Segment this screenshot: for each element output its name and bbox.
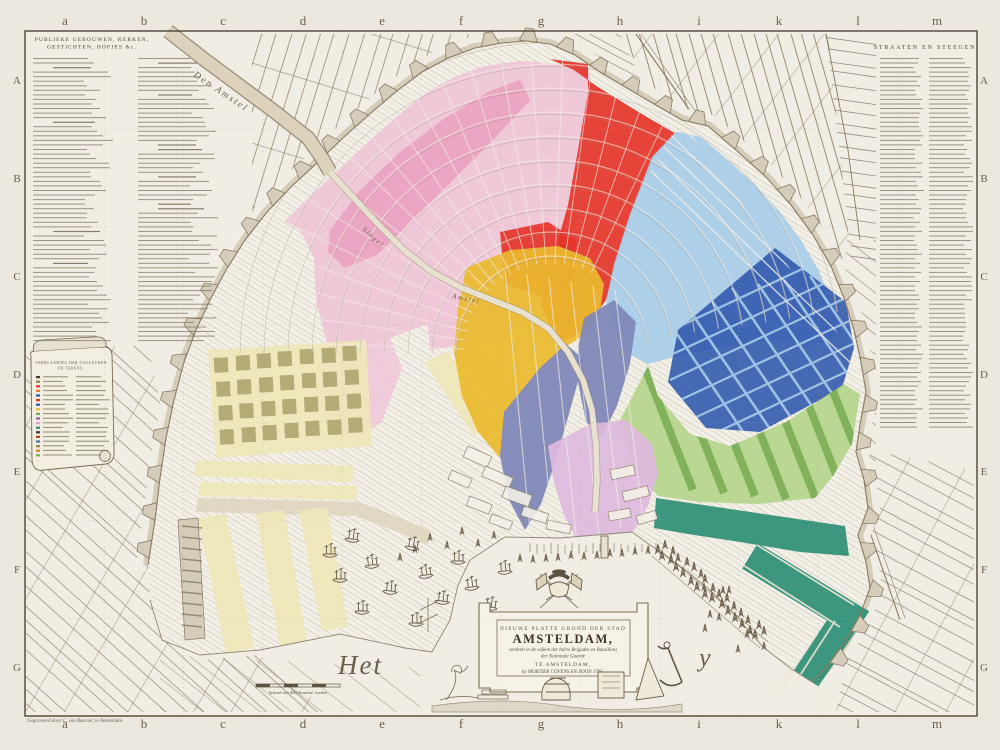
svg-text:VERKLAARING DER COULEUREN: VERKLAARING DER COULEUREN (35, 361, 107, 365)
svg-text:EN TEKENS.: EN TEKENS. (58, 367, 84, 371)
svg-text:PUBLIEKE GEBOUWEN, KERKEN,: PUBLIEKE GEBOUWEN, KERKEN, (35, 37, 149, 43)
svg-text:k: k (776, 716, 783, 731)
svg-text:m: m (932, 13, 942, 28)
svg-text:h: h (617, 13, 624, 28)
svg-text:g: g (538, 13, 545, 28)
svg-text:f: f (459, 716, 464, 731)
svg-text:F: F (14, 564, 20, 576)
svg-text:y: y (696, 643, 711, 672)
svg-text:f: f (459, 13, 464, 28)
svg-text:verdeelt in de wijken der halv: verdeelt in de wijken der halve Brigades… (509, 648, 617, 653)
svg-text:E: E (981, 466, 988, 478)
svg-text:STRAATEN EN STEEGEN: STRAATEN EN STEEGEN (874, 45, 977, 51)
svg-text:d: d (300, 716, 307, 731)
svg-text:Gegraveerd door C. van Baarsel: Gegraveerd door C. van Baarsel, te Amste… (27, 719, 123, 724)
svg-text:B: B (13, 173, 20, 185)
svg-text:m: m (932, 716, 942, 731)
svg-text:i: i (697, 716, 701, 731)
svg-text:AMSTELDAM,: AMSTELDAM, (513, 632, 614, 646)
svg-text:e: e (379, 13, 385, 28)
svg-text:l: l (856, 13, 860, 28)
svg-text:d: d (300, 13, 307, 28)
svg-text:e: e (379, 716, 385, 731)
svg-text:der Nationale Guarde: der Nationale Guarde (541, 655, 586, 660)
svg-text:G: G (980, 662, 988, 674)
svg-text:C: C (980, 271, 987, 283)
svg-text:i: i (697, 13, 701, 28)
svg-text:c: c (220, 716, 226, 731)
svg-text:F: F (981, 564, 987, 576)
svg-text:l: l (856, 716, 860, 731)
svg-text:Het: Het (337, 650, 383, 680)
svg-text:B: B (980, 173, 987, 185)
svg-text:G: G (13, 662, 21, 674)
svg-text:TE AMSTELDAM,: TE AMSTELDAM, (535, 662, 591, 668)
svg-text:E: E (14, 466, 21, 478)
svg-text:g: g (538, 716, 545, 731)
svg-text:Schaal van 400 Amsterd. roeden: Schaal van 400 Amsterd. roeden (269, 690, 328, 695)
svg-text:D: D (13, 369, 21, 381)
svg-text:h: h (617, 716, 624, 731)
svg-text:k: k (776, 13, 783, 28)
svg-text:b: b (141, 716, 148, 731)
svg-text:A: A (980, 75, 988, 87)
svg-text:D: D (980, 369, 988, 381)
svg-text:a: a (62, 13, 68, 28)
svg-text:by MORTIER COVENS EN ZOON 1795: by MORTIER COVENS EN ZOON 1795. (522, 670, 604, 675)
svg-text:b: b (141, 13, 148, 28)
svg-text:c: c (220, 13, 226, 28)
svg-text:GESTICHTEN, HOFJES &c.: GESTICHTEN, HOFJES &c. (47, 45, 137, 51)
svg-text:A: A (13, 75, 21, 87)
svg-text:C: C (13, 271, 20, 283)
